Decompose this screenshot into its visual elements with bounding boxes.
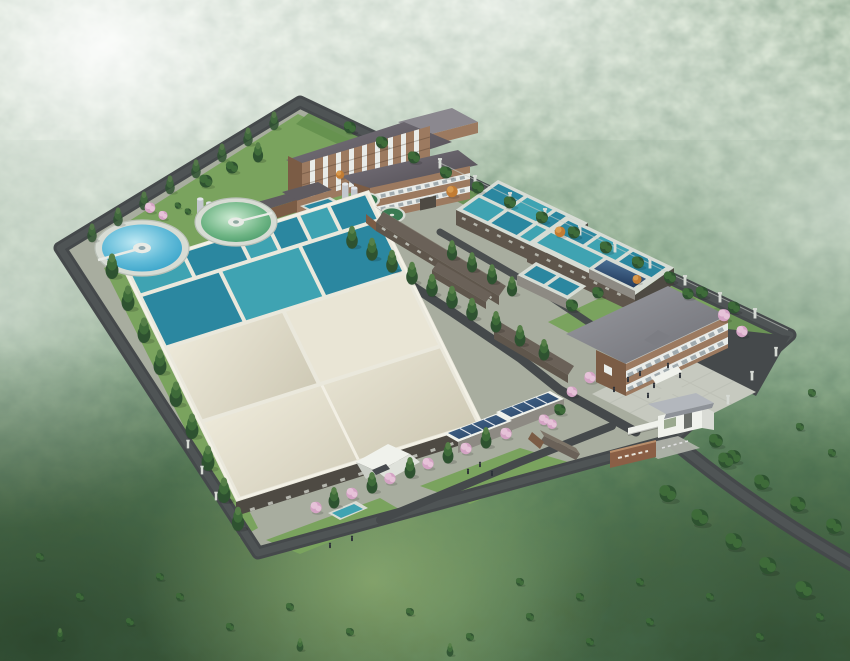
circular-clarifier-green: [195, 198, 277, 246]
aerial-rendering: Aerial rendering of a water treatment pl…: [0, 0, 850, 661]
rendering-canvas: Aerial rendering of a water treatment pl…: [0, 0, 850, 661]
gatehouse-door: [684, 412, 692, 429]
